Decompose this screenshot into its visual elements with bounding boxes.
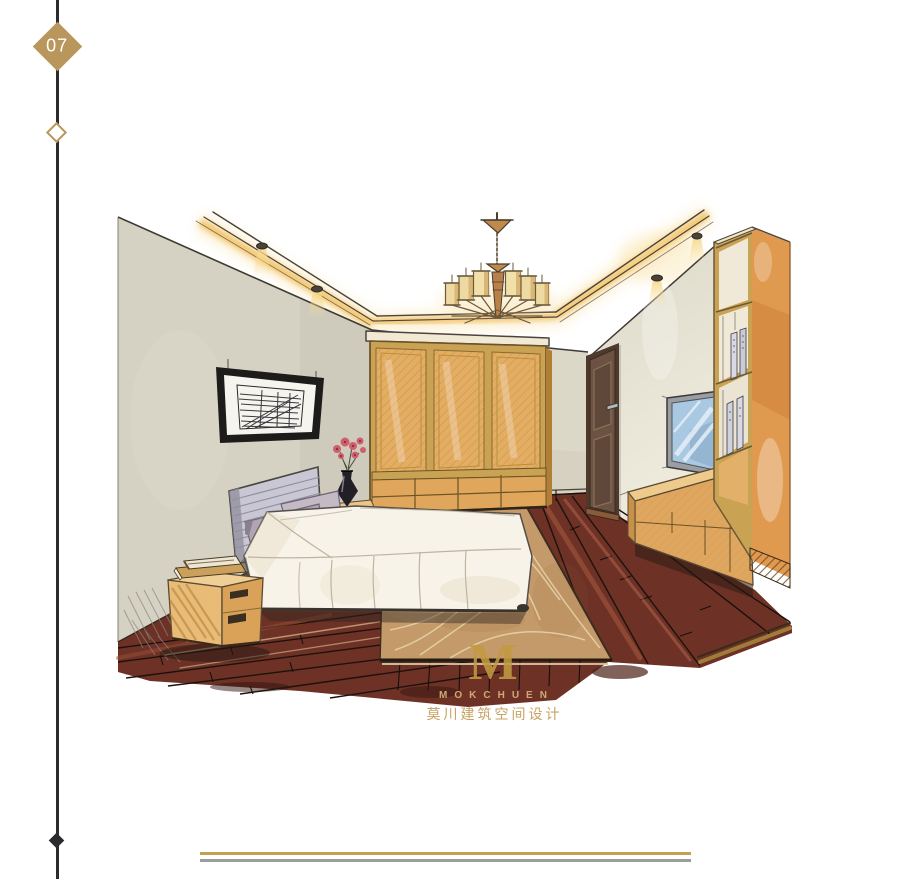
- chandelier: [439, 213, 555, 323]
- footer-gold-rule: [200, 852, 691, 855]
- page-number: 07: [46, 36, 68, 57]
- brand-name-zh: 莫川建筑空间设计: [393, 704, 593, 724]
- footer-gray-rule: [200, 859, 691, 862]
- brand-name-en: MOKCHUEN: [393, 690, 593, 701]
- door: [586, 343, 619, 521]
- illustration-canvas: [0, 0, 900, 886]
- brand-watermark: M MOKCHUEN 莫川建筑空间设计: [393, 641, 593, 724]
- brand-monogram: M: [393, 641, 593, 685]
- duvet: [244, 506, 532, 611]
- wardrobe: [366, 331, 552, 514]
